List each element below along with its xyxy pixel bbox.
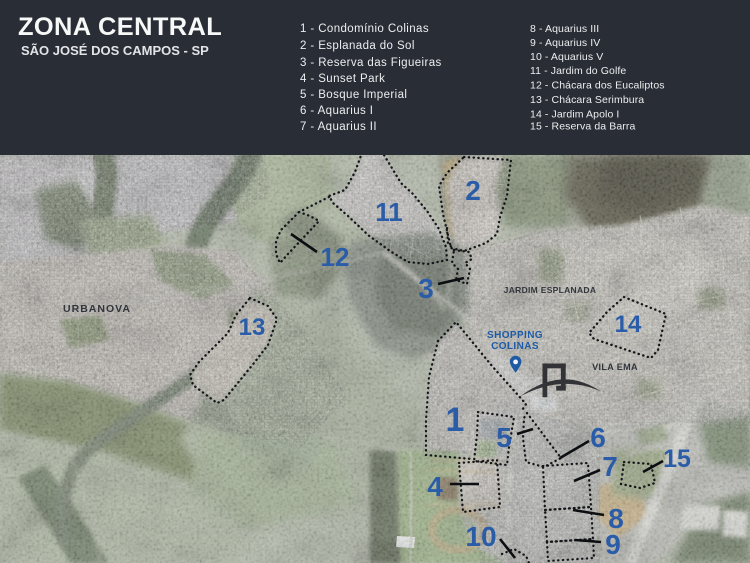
svg-text:1: 1	[446, 401, 465, 439]
svg-text:13: 13	[239, 314, 266, 341]
svg-text:2 - Esplanada do Sol: 2 - Esplanada do Sol	[300, 40, 415, 52]
svg-text:11: 11	[375, 197, 403, 227]
svg-text:3 - Reserva das Figueiras: 3 - Reserva das Figueiras	[300, 57, 442, 69]
svg-text:6: 6	[590, 422, 606, 453]
svg-text:15: 15	[663, 445, 691, 473]
svg-text:13 - Chácara Serimbura: 13 - Chácara Serimbura	[530, 94, 644, 106]
svg-text:2: 2	[465, 175, 481, 206]
svg-text:9 - Aquarius IV: 9 - Aquarius IV	[530, 37, 600, 49]
svg-text:ZONA CENTRAL: ZONA CENTRAL	[18, 13, 222, 41]
svg-text:VILA EMA: VILA EMA	[592, 362, 638, 372]
svg-text:1 - Condomínio Colinas: 1 - Condomínio Colinas	[300, 23, 429, 35]
svg-text:9: 9	[605, 529, 621, 560]
svg-text:14: 14	[615, 311, 642, 338]
svg-text:6 - Aquarius I: 6 - Aquarius I	[300, 105, 373, 117]
svg-text:SÃO JOSÉ DOS CAMPOS - SP: SÃO JOSÉ DOS CAMPOS - SP	[21, 43, 209, 58]
svg-text:3: 3	[418, 273, 434, 304]
svg-text:15 - Reserva da Barra: 15 - Reserva da Barra	[530, 121, 635, 133]
svg-text:7: 7	[602, 451, 618, 482]
svg-text:5: 5	[496, 422, 512, 453]
svg-text:8 - Aquarius III: 8 - Aquarius III	[530, 23, 599, 35]
svg-text:10 - Aquarius V: 10 - Aquarius V	[530, 51, 603, 63]
svg-text:14 - Jardim Apolo I: 14 - Jardim Apolo I	[530, 109, 619, 121]
svg-text:12 - Chácara dos Eucaliptos: 12 - Chácara dos Eucaliptos	[530, 80, 665, 92]
svg-text:4: 4	[427, 471, 443, 502]
svg-text:URBANOVA: URBANOVA	[63, 303, 131, 315]
svg-text:12: 12	[321, 242, 350, 272]
svg-text:SHOPPING: SHOPPING	[487, 330, 543, 341]
svg-text:JARDIM ESPLANADA: JARDIM ESPLANADA	[504, 285, 597, 295]
svg-text:5 - Bosque Imperial: 5 - Bosque Imperial	[300, 89, 407, 101]
svg-text:7 - Aquarius II: 7 - Aquarius II	[300, 121, 377, 133]
svg-text:11 - Jardim do Golfe: 11 - Jardim do Golfe	[530, 65, 626, 77]
svg-text:COLINAS: COLINAS	[491, 341, 539, 352]
svg-text:4 - Sunset Park: 4 - Sunset Park	[300, 73, 385, 85]
svg-text:10: 10	[465, 521, 496, 552]
